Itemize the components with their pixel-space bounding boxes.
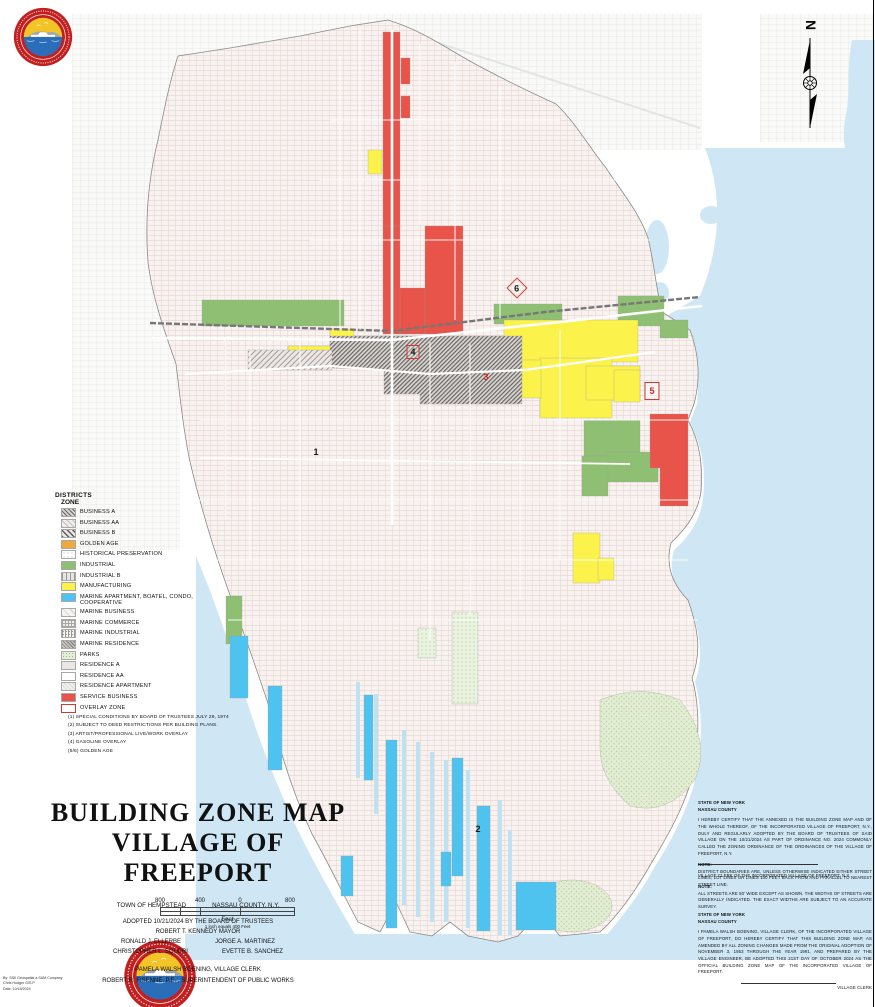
signature-label: VILLAGE CLERK	[837, 985, 872, 990]
scale-ratio-note: 1 inch equals 400 Feet	[160, 924, 295, 929]
legend-footnotes: (1) SPECIAL CONDITIONS BY BOARD OF TRUST…	[68, 714, 298, 756]
zone-overlay-marker[interactable]: 1	[313, 447, 318, 457]
north-arrow: N	[792, 16, 828, 139]
marker-number: 5	[649, 386, 654, 396]
state-line: STATE OF NEW YORK	[698, 912, 872, 919]
marker-number: 6	[514, 283, 519, 293]
county-line: NASSAU COUNTY	[698, 919, 872, 926]
legend-item[interactable]: GOLDEN AGE	[61, 540, 227, 549]
note-body: ALL STREETS ARE 50' WIDE EXCEPT AS SHOWN…	[698, 891, 872, 911]
legend-item[interactable]: MARINE COMMERCE	[61, 619, 227, 628]
zone-overlay-marker[interactable]: 6	[506, 277, 527, 298]
legend-footnote: (3) ARTIST/PROFESSIONAL LIVE/WORK OVERLA…	[68, 731, 298, 739]
legend-item[interactable]: MARINE INDUSTRIAL	[61, 629, 227, 638]
legend-item-label: INDUSTRIAL	[80, 561, 115, 568]
legend-item-label: OVERLAY ZONE	[80, 704, 125, 711]
legend-item-label: RESIDENCE A	[80, 661, 120, 668]
legend-swatch	[61, 629, 76, 638]
clerk-line: PAMELA WALSH BOENING, VILLAGE CLERK	[48, 965, 348, 975]
legend-item-label: MARINE COMMERCE	[80, 619, 140, 626]
legend-footnote: (2) SUBJECT TO DEED RESTRICTIONS PER BUI…	[68, 722, 298, 730]
legend-item-label: HISTORICAL PRESERVATION	[80, 550, 162, 557]
legend-item[interactable]: BUSINESS A	[61, 508, 227, 517]
map-credits: By: SIDI Geospatial a SAM Company Chris …	[3, 976, 63, 992]
legend-item[interactable]: HISTORICAL PRESERVATION	[61, 550, 227, 559]
legend-item-label: PARKS	[80, 651, 100, 658]
map-title-line2: VILLAGE OF FREEPORT	[48, 828, 348, 888]
scale-label: 400	[195, 898, 205, 904]
marker-number: 3	[483, 372, 488, 382]
marker-number: 2	[475, 824, 480, 834]
legend-item-label: GOLDEN AGE	[80, 540, 119, 547]
legend-swatch	[61, 582, 76, 591]
certification-body: I HEREBY CERTIFY THAT THE ANNEXED IS THE…	[698, 817, 872, 857]
legend-footnote: (5/6) GOLDEN AGE	[68, 748, 298, 756]
zone-overlay-marker[interactable]: 5	[644, 382, 659, 400]
legend-item[interactable]: PARKS	[61, 651, 227, 660]
freeport-village-seal-top	[12, 6, 74, 68]
legend-item-label: BUSINESS A	[80, 508, 115, 515]
legend-item-label: SERVICE BUSINESS	[80, 693, 138, 700]
note-header: NOTE:	[698, 884, 712, 889]
legend-swatch	[61, 608, 76, 617]
legend-swatch	[61, 682, 76, 691]
legend-subtitle: ZONE	[61, 499, 227, 506]
trustee-name: JORGE A. MARTINEZ	[215, 937, 275, 947]
legend-item-label: MARINE BUSINESS	[80, 608, 135, 615]
legend-item[interactable]: MARINE RESIDENCE	[61, 640, 227, 649]
legend-swatch	[61, 508, 76, 517]
county-line: NASSAU COUNTY	[698, 807, 872, 814]
legend-item-label: RESIDENCE APARTMENT	[80, 682, 152, 689]
legend-title: DISTRICTS	[55, 492, 227, 499]
map-sheet: { "colors": { "water": "#cfe7f4", "servi…	[0, 0, 875, 1007]
scale-bar: 800 400 0 800 Feet 1 inch equals 400 Fee…	[160, 898, 295, 929]
legend-swatch	[61, 672, 76, 681]
legend-footnote: (1) SPECIAL CONDITIONS BY BOARD OF TRUST…	[68, 714, 298, 722]
north-label: N	[803, 20, 819, 30]
legend-item[interactable]: BUSINESS B	[61, 529, 227, 538]
zone-overlay-marker[interactable]: 4	[406, 345, 419, 359]
legend-swatch	[61, 693, 76, 702]
legend-swatch	[61, 529, 76, 538]
legend-item-label: RESIDENCE AA	[80, 672, 124, 679]
trustee-name: RONALD J. ELLERBE	[121, 937, 181, 947]
title-block: BUILDING ZONE MAP VILLAGE OF FREEPORT TO…	[48, 798, 348, 986]
legend: DISTRICTS ZONE BUSINESS A BUSINESS AA BU…	[55, 492, 227, 714]
legend-item[interactable]: MARINE APARTMENT, BOATEL, CONDO, COOPERA…	[61, 593, 227, 607]
legend-swatch	[61, 519, 76, 528]
legend-footnote: (4) GASOLINE OVERLAY	[68, 739, 298, 747]
scale-label: 800	[285, 898, 295, 904]
legend-item[interactable]: MARINE BUSINESS	[61, 608, 227, 617]
trustee-name: EVETTE B. SANCHEZ	[222, 947, 283, 957]
legend-item[interactable]: RESIDENCE A	[61, 661, 227, 670]
credit-line: Date: 10/18/2024	[3, 987, 63, 992]
legend-item[interactable]: RESIDENCE AA	[61, 672, 227, 681]
legend-swatch	[61, 651, 76, 660]
legend-swatch	[61, 561, 76, 570]
legend-item[interactable]: INDUSTRIAL	[61, 561, 227, 570]
legend-item-label: BUSINESS B	[80, 529, 116, 536]
map-title-line1: BUILDING ZONE MAP	[48, 798, 348, 828]
legend-item-label: MANUFACTURING	[80, 582, 131, 589]
legend-item[interactable]: BUSINESS AA	[61, 519, 227, 528]
certification-body: I PAMELA WALSH BOENING, VILLAGE CLERK, O…	[698, 929, 872, 976]
legend-swatch	[61, 640, 76, 649]
scale-label: 800	[155, 898, 165, 904]
legend-item-label: BUSINESS AA	[80, 519, 119, 526]
trustee-name: CHRISTOPHER L. SQUERI	[113, 947, 188, 957]
legend-item-label: MARINE APARTMENT, BOATEL, CONDO, COOPERA…	[80, 593, 227, 607]
legend-item-label: MARINE INDUSTRIAL	[80, 629, 140, 636]
note-header: NOTE:	[698, 862, 712, 867]
legend-item[interactable]: SERVICE BUSINESS	[61, 693, 227, 702]
legend-item-label: INDUSTRIAL B	[80, 572, 121, 579]
engineer-line: ROBERT R. FISENNE, P.E. , SUPERINTENDENT…	[48, 976, 348, 986]
legend-item[interactable]: RESIDENCE APARTMENT	[61, 682, 227, 691]
zone-overlay-marker[interactable]: 3	[483, 372, 488, 382]
legend-item[interactable]: INDUSTRIAL B	[61, 572, 227, 581]
zone-overlay-marker[interactable]: 2	[475, 824, 480, 834]
legend-swatch	[61, 593, 76, 602]
note-street-widths: NOTE: ALL STREETS ARE 50' WIDE EXCEPT AS…	[698, 884, 872, 911]
legend-swatch	[61, 619, 76, 628]
legend-swatch	[61, 540, 76, 549]
legend-item[interactable]: OVERLAY ZONE	[61, 704, 227, 713]
legend-swatch	[61, 572, 76, 581]
certification-bottom: STATE OF NEW YORK NASSAU COUNTY I PAMELA…	[698, 912, 872, 992]
legend-swatch	[61, 704, 76, 713]
legend-item-label: MARINE RESIDENCE	[80, 640, 139, 647]
scale-unit: Feet	[160, 917, 295, 923]
state-line: STATE OF NEW YORK	[698, 800, 872, 807]
sheet-border	[873, 0, 874, 1007]
marker-number: 4	[410, 347, 415, 357]
scale-label: 0	[238, 898, 241, 904]
legend-item[interactable]: MANUFACTURING	[61, 582, 227, 591]
legend-swatch	[61, 550, 76, 559]
scale-bar-graphic	[160, 907, 295, 916]
legend-swatch	[61, 661, 76, 670]
legend-items: BUSINESS A BUSINESS AA BUSINESS B GOLDEN…	[55, 508, 227, 713]
marker-number: 1	[313, 447, 318, 457]
